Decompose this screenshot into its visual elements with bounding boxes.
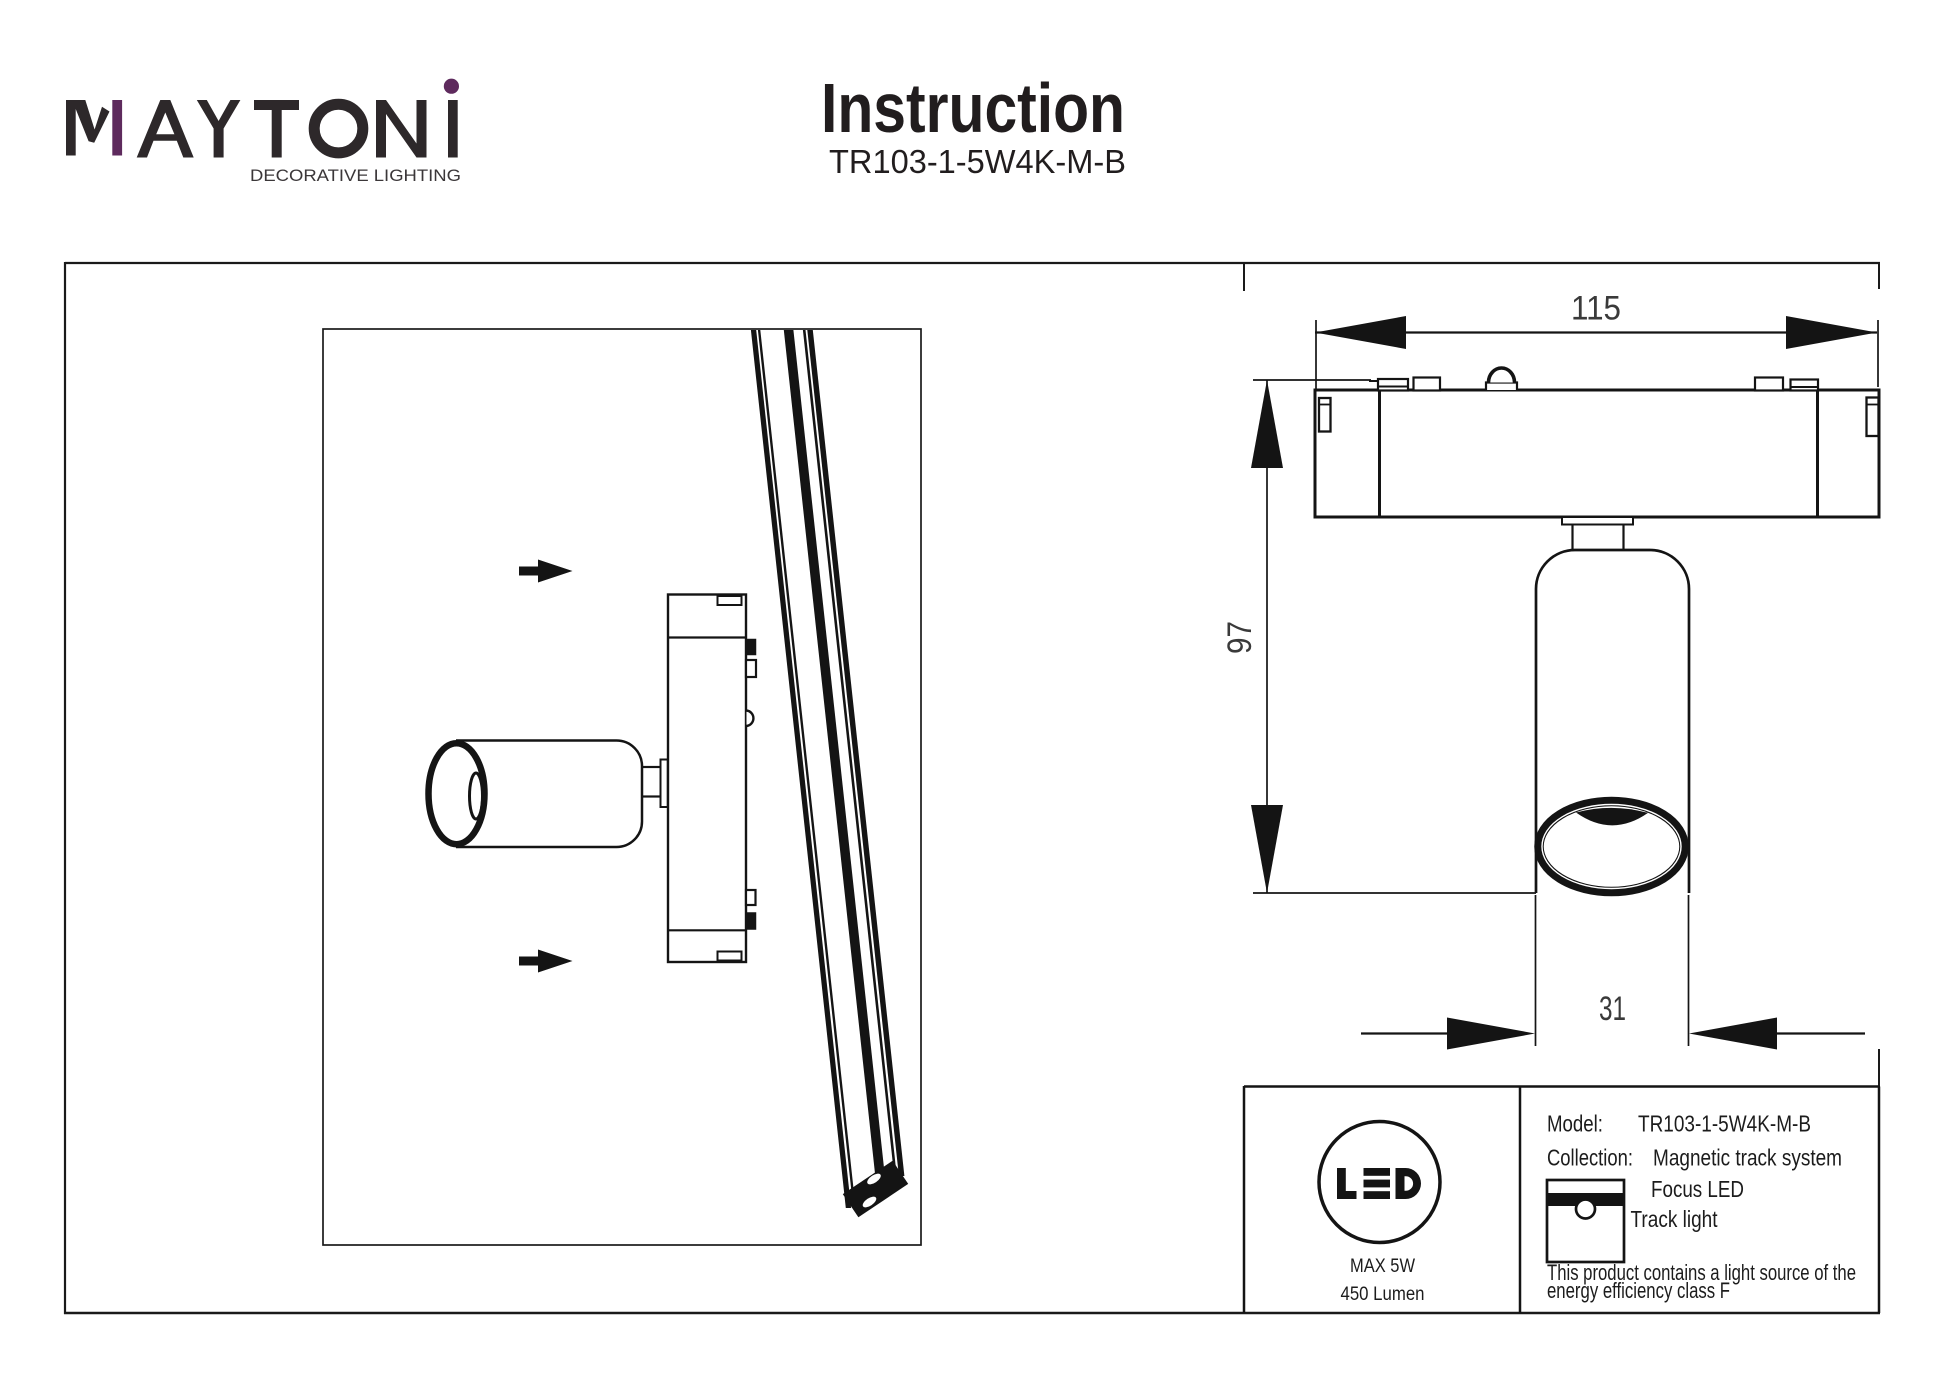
svg-text:Collection:: Collection:	[1547, 1145, 1633, 1171]
svg-text:DECORATIVE LIGHTING: DECORATIVE LIGHTING	[250, 167, 461, 185]
svg-text:energy efficiency class F: energy efficiency class F	[1547, 1278, 1730, 1303]
svg-text:31: 31	[1599, 990, 1626, 1028]
svg-text:Track light: Track light	[1631, 1206, 1719, 1232]
svg-text:Instruction: Instruction	[821, 69, 1125, 147]
svg-text:Focus LED: Focus LED	[1651, 1176, 1744, 1202]
svg-text:TR103-1-5W4K-M-B: TR103-1-5W4K-M-B	[829, 143, 1126, 180]
svg-text:Magnetic track system: Magnetic track system	[1653, 1145, 1842, 1171]
svg-text:115: 115	[1571, 290, 1621, 328]
svg-text:97: 97	[1221, 621, 1259, 654]
svg-text:Model:: Model:	[1547, 1111, 1603, 1137]
svg-text:TR103-1-5W4K-M-B: TR103-1-5W4K-M-B	[1638, 1111, 1811, 1137]
svg-text:MAX 5W: MAX 5W	[1350, 1256, 1415, 1277]
svg-text:450 Lumen: 450 Lumen	[1341, 1284, 1425, 1305]
